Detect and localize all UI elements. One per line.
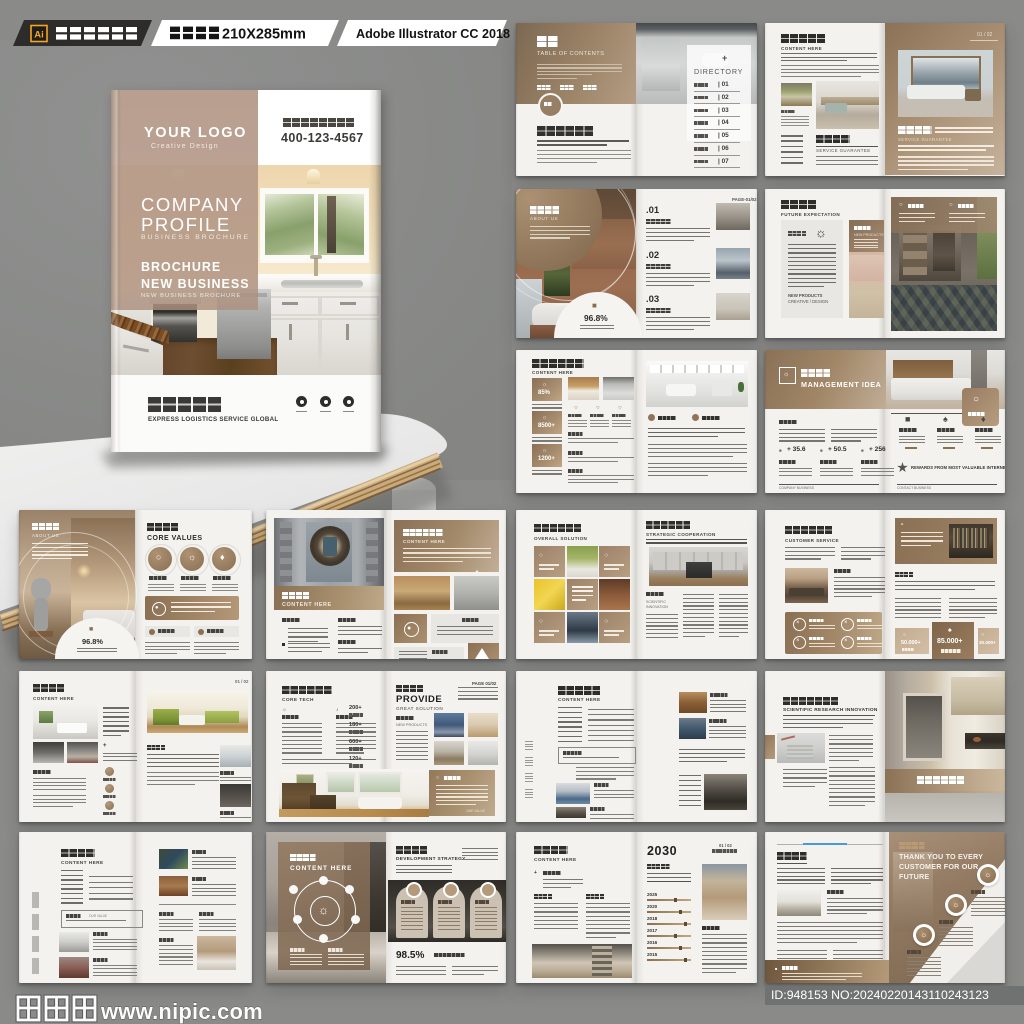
svg-text:Ai: Ai <box>34 30 44 41</box>
svg-text:Adobe Illustrator CC 2018: Adobe Illustrator CC 2018 <box>356 27 510 41</box>
svg-text:www.nipic.com: www.nipic.com <box>100 999 263 1024</box>
svg-text:210X285mm: 210X285mm <box>222 27 306 43</box>
